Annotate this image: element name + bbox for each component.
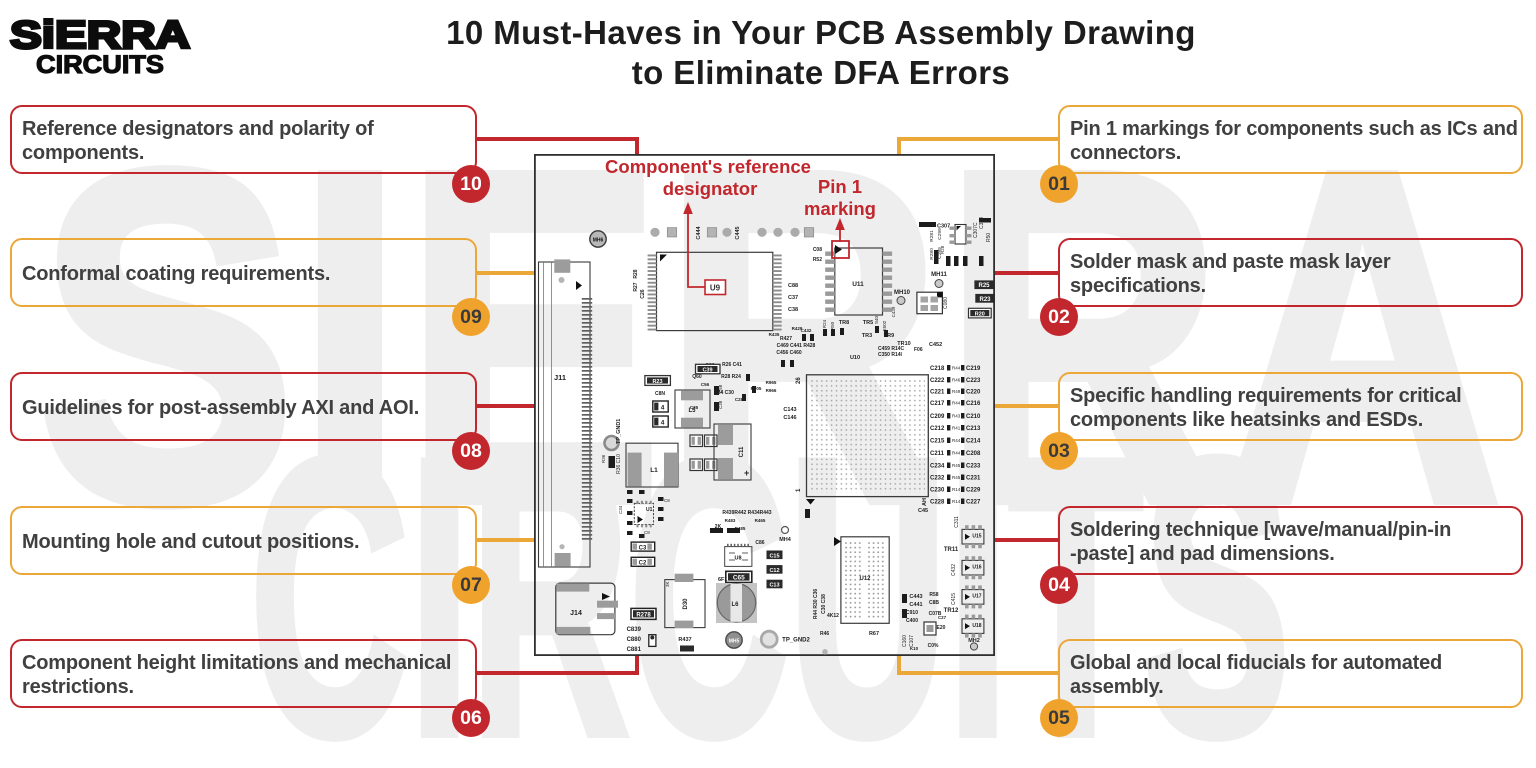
svg-text:R44: R44: [952, 401, 961, 406]
svg-text:J11: J11: [554, 373, 566, 382]
svg-text:U16: U16: [972, 564, 981, 570]
svg-text:C432: C432: [951, 564, 957, 576]
svg-text:C880: C880: [627, 637, 642, 643]
svg-text:C58: C58: [718, 384, 723, 393]
svg-text:R965: R965: [766, 380, 777, 385]
svg-text:R67: R67: [869, 631, 879, 637]
svg-text:C209: C209: [930, 414, 945, 420]
svg-text:C210: C210: [966, 414, 981, 420]
svg-text:L6: L6: [731, 602, 739, 608]
svg-text:+: +: [744, 468, 749, 478]
svg-text:R46: R46: [952, 378, 961, 383]
svg-text:C443: C443: [909, 594, 922, 600]
svg-text:C45: C45: [918, 508, 928, 514]
svg-text:Pin 1: Pin 1: [818, 176, 862, 197]
svg-text:C12: C12: [769, 568, 779, 574]
svg-text:MH4: MH4: [779, 537, 792, 543]
svg-text:TR3: TR3: [862, 333, 872, 339]
svg-text:C217: C217: [930, 401, 945, 407]
svg-text:R49: R49: [952, 389, 961, 394]
svg-text:R45: R45: [952, 475, 961, 480]
svg-text:C214: C214: [966, 439, 981, 445]
svg-text:C0%: C0%: [928, 643, 939, 649]
svg-text:6F1: 6F1: [718, 577, 727, 583]
svg-text:MH6: MH6: [593, 238, 604, 244]
svg-text:C39: C39: [702, 367, 712, 373]
svg-text:C107: C107: [909, 635, 915, 647]
svg-text:R44: R44: [952, 438, 961, 443]
svg-text:C456 C460: C456 C460: [776, 350, 802, 356]
svg-text:C3: C3: [639, 545, 647, 551]
svg-text:C881: C881: [627, 647, 642, 653]
svg-text:C218: C218: [930, 366, 945, 372]
svg-text:R20: R20: [975, 311, 985, 317]
svg-text:C444: C444: [696, 225, 702, 239]
svg-text:R427: R427: [780, 336, 792, 342]
svg-text:C231: C231: [966, 476, 981, 482]
svg-text:L1: L1: [650, 467, 658, 474]
svg-text:R41: R41: [952, 426, 961, 431]
svg-text:AH: AH: [922, 498, 928, 506]
svg-text:S40: S40: [874, 316, 879, 325]
svg-text:MH5: MH5: [729, 639, 740, 645]
svg-text:R50: R50: [830, 321, 835, 330]
svg-text:C910: C910: [906, 610, 918, 616]
svg-text:R278: R278: [636, 613, 651, 619]
svg-text:R36 C10: R36 C10: [616, 454, 622, 474]
svg-text:R44 R30 C36: R44 R30 C36: [813, 589, 819, 620]
svg-text:TR8: TR8: [839, 320, 849, 326]
svg-text:C211: C211: [930, 451, 945, 457]
svg-text:C86: C86: [755, 540, 764, 546]
svg-text:C227: C227: [966, 500, 981, 506]
svg-text:C228: C228: [930, 500, 945, 506]
svg-text:U11: U11: [852, 281, 864, 288]
svg-text:26: 26: [796, 377, 802, 384]
svg-text:R27: R27: [633, 282, 639, 291]
svg-text:C8: C8: [644, 530, 650, 535]
svg-text:R43: R43: [952, 414, 961, 419]
svg-text:U10: U10: [850, 355, 860, 361]
svg-text:C432: C432: [801, 328, 812, 333]
svg-text:C469 C441 R428: C469 C441 R428: [777, 343, 816, 349]
svg-text:MH11: MH11: [931, 272, 947, 278]
svg-text:R28 R24: R28 R24: [721, 374, 741, 380]
svg-text:C208: C208: [966, 451, 981, 457]
svg-text:R44: R44: [952, 451, 961, 456]
svg-text:C88: C88: [788, 283, 798, 289]
svg-text:U15: U15: [972, 533, 981, 539]
svg-text:C8: C8: [664, 498, 670, 503]
svg-text:U8: U8: [734, 556, 741, 562]
svg-text:TP_GND1: TP_GND1: [616, 419, 622, 444]
svg-text:TP_GND2: TP_GND2: [782, 638, 810, 644]
svg-text:C56: C56: [701, 382, 710, 387]
svg-text:R28: R28: [633, 269, 639, 278]
svg-text:C08: C08: [813, 247, 822, 253]
svg-text:R52: R52: [813, 257, 822, 263]
svg-text:C452: C452: [929, 342, 942, 348]
svg-text:R46: R46: [820, 631, 829, 637]
svg-text:R439R442 R434R443: R439R442 R434R443: [722, 510, 771, 516]
svg-text:R483: R483: [725, 518, 736, 523]
svg-text:C38: C38: [788, 307, 798, 313]
svg-text:C216: C216: [966, 401, 981, 407]
svg-text:C34: C34: [618, 505, 623, 514]
svg-text:R58: R58: [929, 592, 938, 598]
svg-text:Q60: Q60: [692, 374, 702, 380]
svg-text:3K: 3K: [665, 581, 670, 587]
svg-text:R25: R25: [978, 283, 990, 289]
svg-text:E20: E20: [937, 625, 946, 631]
svg-text:marking: marking: [804, 198, 876, 219]
svg-text:TR5: TR5: [863, 320, 873, 326]
svg-text:D30: D30: [683, 598, 689, 610]
svg-text:C400: C400: [906, 618, 918, 624]
svg-text:C26: C26: [640, 289, 646, 298]
svg-text:C439: C439: [891, 306, 896, 317]
svg-text:Component's reference: Component's reference: [605, 156, 811, 177]
svg-text:R28: R28: [940, 245, 945, 254]
svg-text:R281: R281: [929, 230, 935, 242]
svg-text:C308: C308: [979, 217, 985, 229]
svg-text:R50: R50: [986, 233, 992, 242]
svg-text:R45: R45: [952, 463, 961, 468]
svg-text:R14: R14: [952, 487, 961, 492]
svg-text:R437: R437: [678, 637, 691, 643]
svg-text:C233: C233: [966, 464, 981, 470]
svg-text:C146: C146: [783, 415, 796, 421]
svg-text:4K12: 4K12: [827, 613, 839, 619]
svg-text:C445: C445: [735, 226, 741, 239]
svg-text:U9: U9: [710, 284, 721, 293]
svg-text:R465: R465: [755, 518, 766, 523]
svg-text:C215: C215: [930, 439, 945, 445]
svg-text:TR12: TR12: [944, 608, 959, 614]
svg-text:C350 R14I: C350 R14I: [878, 352, 903, 358]
svg-text:C839: C839: [627, 627, 642, 633]
svg-text:C232: C232: [930, 476, 945, 482]
svg-text:C080: C080: [943, 297, 949, 309]
svg-text:TR11: TR11: [944, 547, 959, 553]
svg-text:C213: C213: [966, 426, 981, 432]
svg-text:C143: C143: [783, 407, 796, 413]
svg-text:C230: C230: [930, 488, 945, 494]
svg-text:U1: U1: [646, 507, 653, 513]
svg-text:J14: J14: [570, 610, 582, 617]
svg-text:C299: C299: [937, 228, 943, 240]
svg-text:E502: E502: [882, 320, 887, 331]
svg-text:F06: F06: [914, 347, 923, 353]
svg-text:C11: C11: [739, 446, 745, 457]
svg-text:U12: U12: [859, 576, 871, 582]
svg-text:R14: R14: [952, 499, 961, 504]
svg-text:C415: C415: [951, 593, 957, 605]
svg-text:C221: C221: [930, 390, 945, 396]
svg-text:C2: C2: [639, 561, 647, 567]
svg-text:designator: designator: [663, 178, 758, 199]
svg-text:C229: C229: [966, 488, 981, 494]
svg-text:L5: L5: [688, 408, 696, 414]
svg-text:MH10: MH10: [894, 290, 911, 296]
svg-text:R23: R23: [979, 297, 991, 303]
svg-text:R966: R966: [766, 388, 777, 393]
svg-text:U18: U18: [972, 623, 981, 629]
svg-text:C307C: C307C: [973, 222, 979, 238]
svg-text:1: 1: [796, 488, 802, 492]
svg-text:C222: C222: [930, 378, 945, 384]
svg-text:4: 4: [661, 419, 665, 426]
svg-text:C311: C311: [954, 516, 960, 528]
svg-text:C223: C223: [966, 378, 981, 384]
svg-text:C37: C37: [788, 295, 798, 301]
svg-text:C30 C38: C30 C38: [821, 594, 827, 614]
svg-text:C160: C160: [902, 635, 908, 647]
svg-text:R26 C41: R26 C41: [722, 362, 742, 368]
svg-text:C212: C212: [930, 426, 945, 432]
svg-text:4: 4: [661, 404, 665, 411]
svg-text:C38: C38: [718, 400, 723, 409]
svg-text:R44: R44: [952, 366, 961, 371]
svg-text:R23: R23: [652, 379, 662, 385]
svg-text:R36: R36: [601, 454, 606, 463]
svg-text:R24: R24: [822, 319, 827, 328]
svg-text:C8N: C8N: [655, 391, 665, 397]
svg-text:C15: C15: [769, 553, 779, 559]
svg-text:C220: C220: [966, 390, 981, 396]
svg-text:C8B: C8B: [929, 600, 939, 606]
svg-text:C27: C27: [938, 615, 947, 620]
svg-text:C234: C234: [930, 464, 945, 470]
svg-text:C65: C65: [733, 575, 745, 582]
svg-text:C441: C441: [909, 602, 922, 608]
svg-text:U17: U17: [972, 594, 981, 600]
svg-text:R435: R435: [769, 332, 780, 337]
svg-text:CIRCUITS: CIRCUITS: [36, 51, 164, 79]
svg-text:C219: C219: [966, 366, 981, 372]
svg-text:C13: C13: [769, 583, 779, 589]
